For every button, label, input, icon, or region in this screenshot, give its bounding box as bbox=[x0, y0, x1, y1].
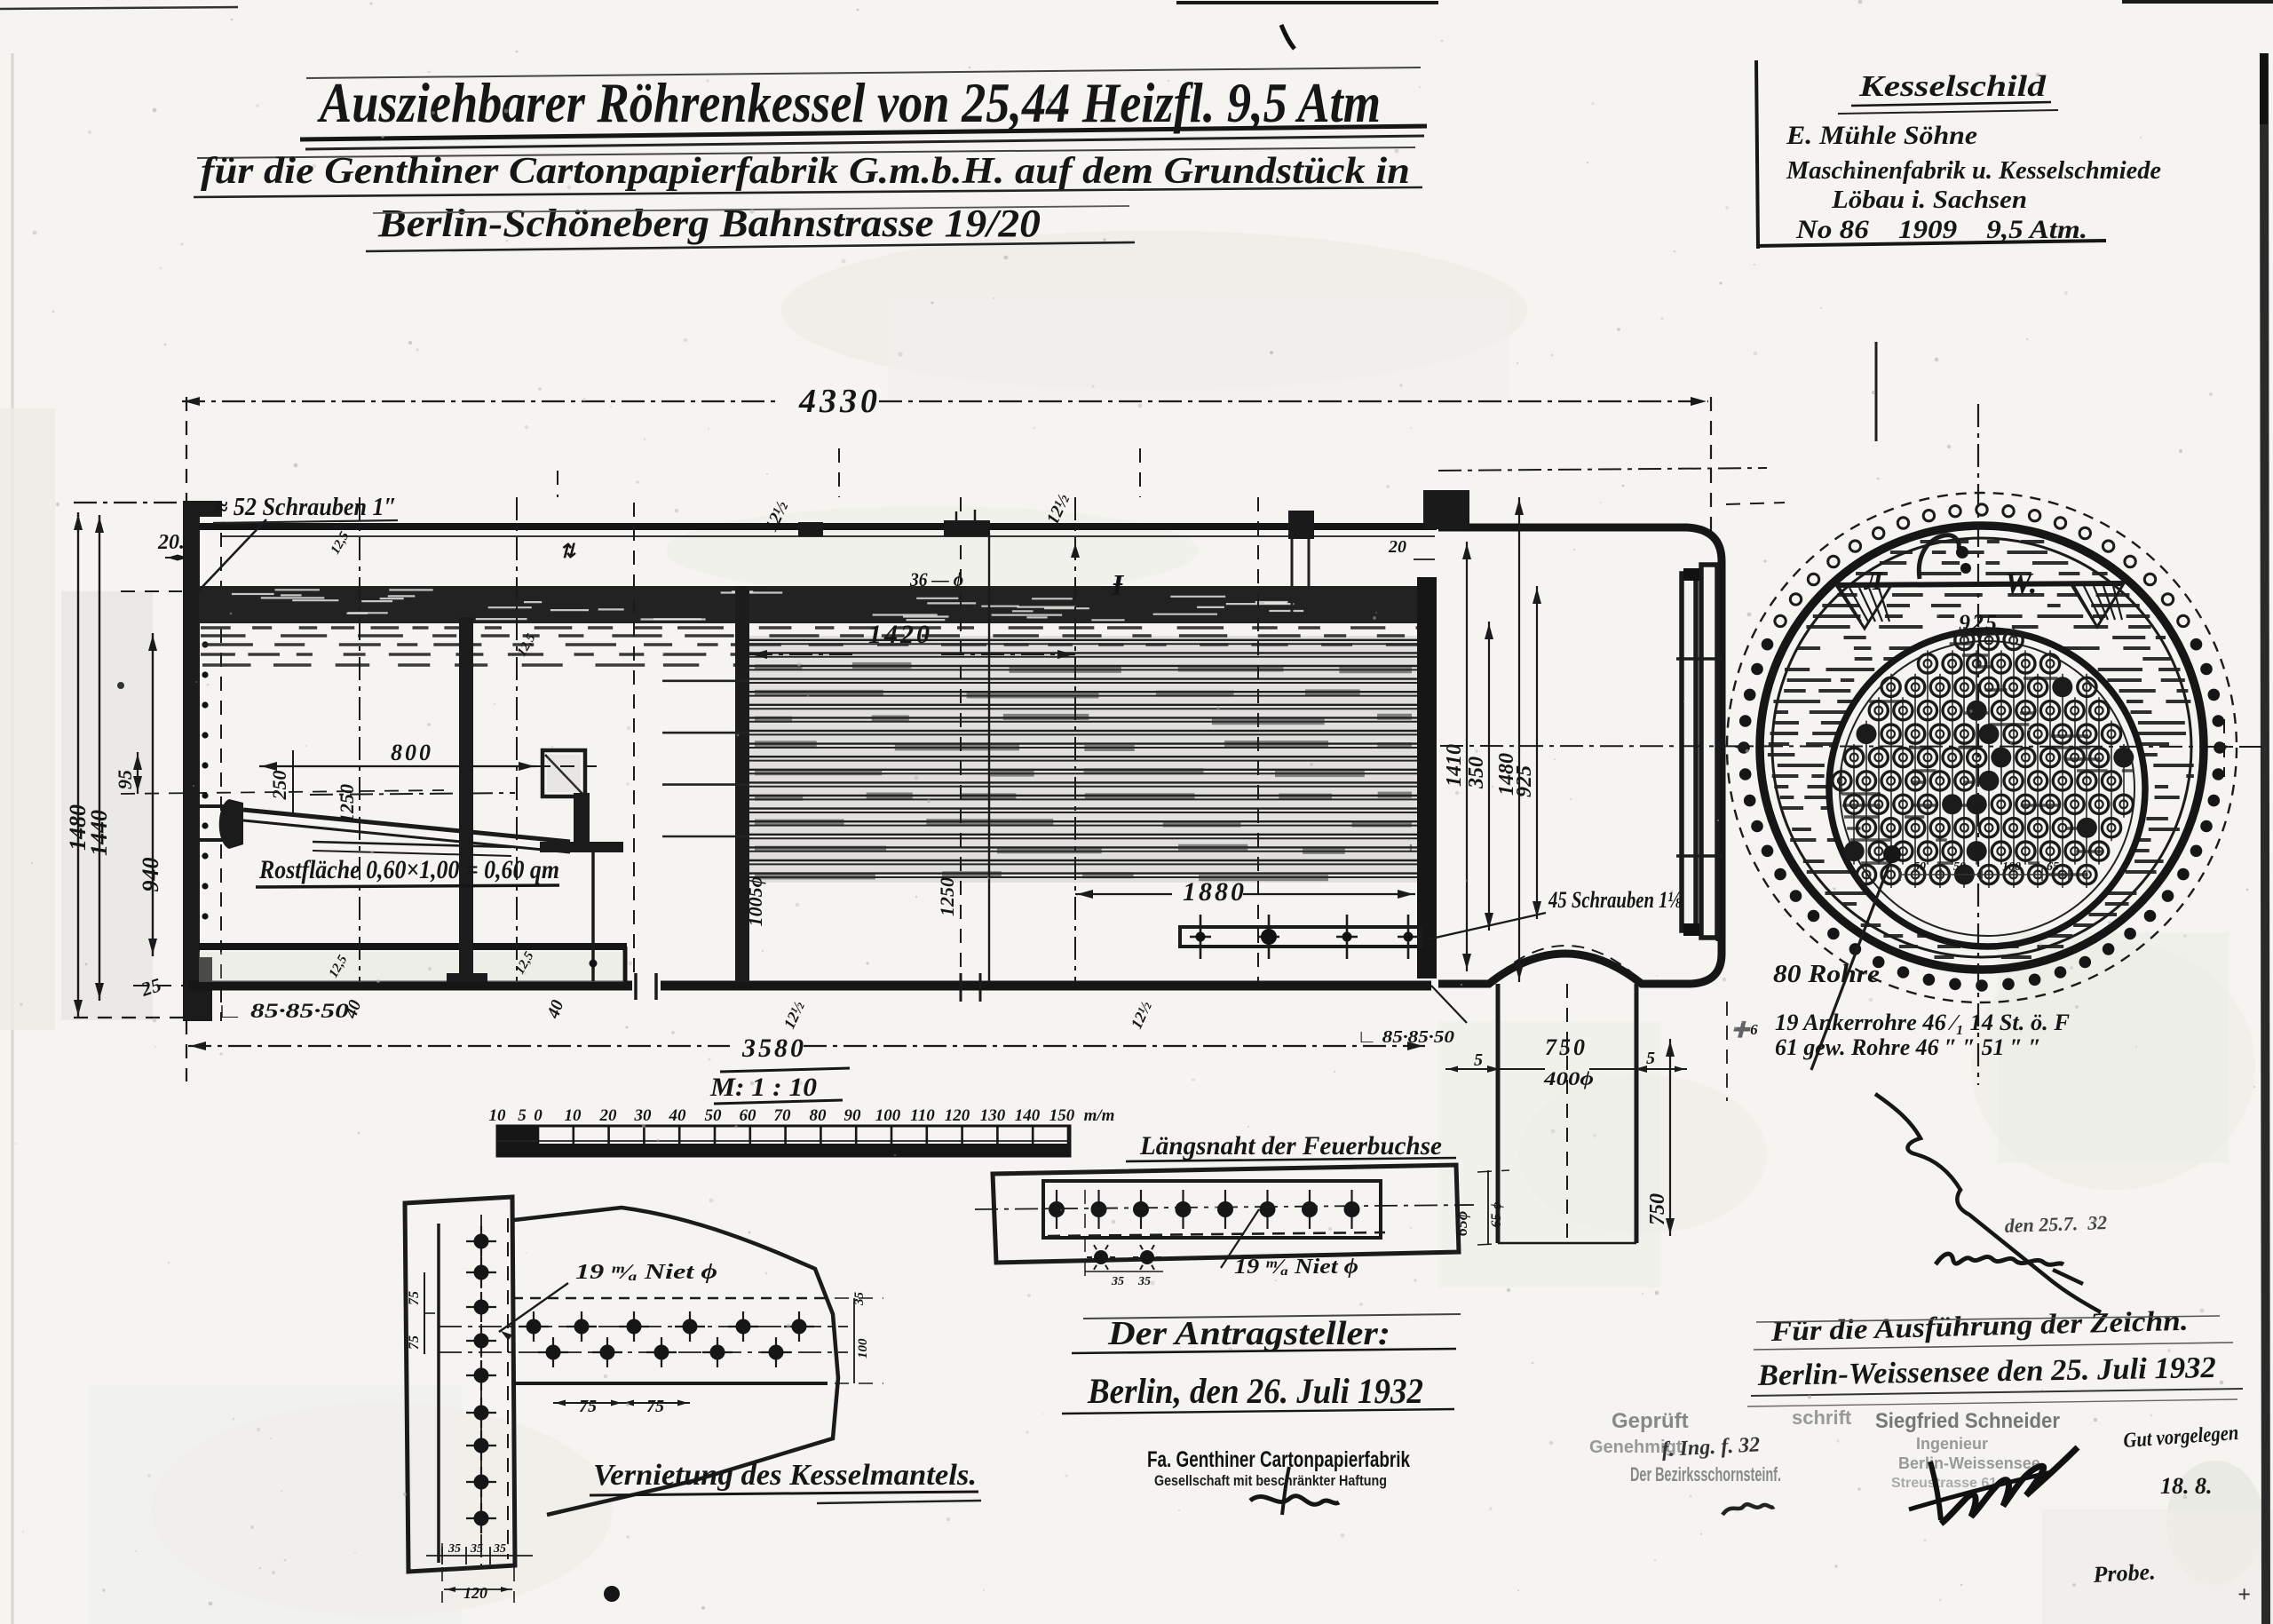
svg-text:65 ϕ: 65 ϕ bbox=[1489, 1201, 1504, 1227]
svg-text:Berlin, den 26. Juli 1932: Berlin, den 26. Juli 1932 bbox=[1087, 1371, 1423, 1411]
svg-text:35: 35 bbox=[1111, 1275, 1124, 1288]
svg-text:1005ϕ: 1005ϕ bbox=[744, 875, 766, 926]
svg-text:50: 50 bbox=[705, 1106, 723, 1125]
svg-text:61 gew. Rohre 46 ″ ″ 51 ″: 61 gew. Rohre 46 ″ ″ 51 ″ ″ bbox=[1775, 1034, 2041, 1060]
svg-text:90: 90 bbox=[844, 1106, 862, 1125]
svg-text:250: 250 bbox=[268, 771, 290, 801]
svg-text:1250: 1250 bbox=[336, 784, 358, 823]
svg-text:1880: 1880 bbox=[1183, 877, 1247, 907]
svg-text:100: 100 bbox=[2002, 860, 2021, 874]
svg-text:4330: 4330 bbox=[798, 383, 881, 420]
svg-text:5: 5 bbox=[1646, 1049, 1655, 1068]
svg-text:50: 50 bbox=[1913, 860, 1926, 874]
svg-text:100: 100 bbox=[856, 1338, 870, 1359]
svg-text:Der Antragsteller:: Der Antragsteller: bbox=[1107, 1315, 1390, 1352]
svg-text:30: 30 bbox=[634, 1106, 653, 1125]
svg-text:den 25.7. 32: den 25.7. 32 bbox=[2004, 1211, 2107, 1237]
svg-text:65: 65 bbox=[2047, 860, 2059, 874]
svg-text:150: 150 bbox=[1049, 1106, 1075, 1125]
svg-text:120: 120 bbox=[945, 1106, 970, 1125]
svg-text:5: 5 bbox=[518, 1106, 527, 1125]
svg-text:Längsnaht der Feuerbuchse: Längsnaht der Feuerbuchse bbox=[1139, 1131, 1442, 1161]
svg-text:Ɨ: Ɨ bbox=[1111, 569, 1125, 602]
svg-text:120: 120 bbox=[463, 1584, 487, 1602]
svg-text:M: 1 : 10: M: 1 : 10 bbox=[709, 1073, 817, 1102]
svg-text:75: 75 bbox=[646, 1397, 664, 1416]
svg-text:Der Bezirksschornsteinf.: Der Bezirksschornsteinf. bbox=[1630, 1463, 1781, 1485]
svg-text:Vernietung des Kesselmantels.: Vernietung des Kesselmantels. bbox=[593, 1459, 977, 1492]
svg-text:3580: 3580 bbox=[741, 1034, 806, 1063]
svg-text:≈ 52 Schrauben 1″: ≈ 52 Schrauben 1″ bbox=[215, 494, 397, 521]
svg-text:130: 130 bbox=[980, 1106, 1006, 1125]
svg-text:schrift: schrift bbox=[1792, 1406, 1852, 1429]
svg-text:für die Genthiner Cartonpapier: für die Genthiner Cartonpapierfabrik G.m… bbox=[201, 151, 1410, 192]
svg-text:35: 35 bbox=[493, 1542, 506, 1556]
svg-text:750: 750 bbox=[1545, 1034, 1588, 1060]
svg-text:Maschinenfabrik u. Kesselschmi: Maschinenfabrik u. Kesselschmiede bbox=[1786, 157, 2161, 185]
svg-text:35: 35 bbox=[470, 1542, 483, 1556]
svg-text:95: 95 bbox=[114, 770, 136, 789]
svg-text:Fa. Genthiner Cartonpapierfabr: Fa. Genthiner Cartonpapierfabrik bbox=[1147, 1447, 1410, 1472]
svg-text:1250: 1250 bbox=[936, 877, 958, 916]
svg-text:110: 110 bbox=[910, 1106, 935, 1125]
svg-text:18. 8.: 18. 8. bbox=[2160, 1473, 2213, 1499]
svg-text:No 86 1909 9,5 Atm.: No 86 1909 9,5 Atm. bbox=[1795, 215, 2087, 244]
svg-text:100: 100 bbox=[875, 1106, 901, 1125]
svg-text:⇅: ⇅ bbox=[559, 540, 576, 562]
svg-text:45 Schrauben 1⅛: 45 Schrauben 1⅛ bbox=[1548, 887, 1682, 913]
svg-text:20.: 20. bbox=[157, 531, 185, 554]
svg-text:1440: 1440 bbox=[86, 810, 112, 856]
svg-text:50: 50 bbox=[1953, 860, 1966, 874]
svg-text:10: 10 bbox=[565, 1106, 582, 1125]
svg-text:Geprüft: Geprüft bbox=[1612, 1409, 1689, 1433]
svg-text:+: + bbox=[2237, 1581, 2251, 1607]
svg-text:5: 5 bbox=[1474, 1050, 1483, 1070]
svg-text:Kesselschild: Kesselschild bbox=[1858, 70, 2047, 103]
svg-text:Probe.: Probe. bbox=[2092, 1558, 2156, 1588]
svg-text:1410: 1410 bbox=[1443, 744, 1466, 787]
svg-text:40: 40 bbox=[669, 1106, 687, 1125]
svg-text:36 — ϕ: 36 — ϕ bbox=[909, 568, 963, 590]
svg-text:➕6: ➕6 bbox=[1731, 1020, 1758, 1038]
svg-text:0: 0 bbox=[534, 1106, 543, 1125]
svg-text:∟ 85·85·50: ∟ 85·85·50 bbox=[216, 1000, 350, 1022]
svg-text:19 Ankerrohre 46 ⁭∕₁ 14 St. ö: 19 Ankerrohre 46 ⁭∕₁ 14 St. ö. F bbox=[1775, 1010, 2070, 1035]
svg-text:m/m: m/m bbox=[1084, 1106, 1115, 1125]
svg-text:925: 925 bbox=[1513, 765, 1536, 797]
svg-text:60: 60 bbox=[740, 1106, 757, 1125]
svg-text:75: 75 bbox=[407, 1291, 422, 1305]
svg-text:140: 140 bbox=[1015, 1106, 1041, 1125]
svg-text:75: 75 bbox=[407, 1335, 422, 1350]
svg-text:75: 75 bbox=[579, 1397, 597, 1416]
svg-text:10: 10 bbox=[489, 1106, 507, 1125]
svg-text:70: 70 bbox=[774, 1106, 792, 1125]
svg-text:940: 940 bbox=[138, 858, 163, 892]
svg-text:80: 80 bbox=[810, 1106, 828, 1125]
svg-text:Rostfläche 0,60×1,00 = 0,60 q: Rostfläche 0,60×1,00 = 0,60 qm bbox=[258, 855, 559, 884]
svg-text:∟ 85·85·50: ∟ 85·85·50 bbox=[1357, 1027, 1454, 1047]
svg-text:350: 350 bbox=[1465, 757, 1488, 789]
svg-text:Siegfried Schneider: Siegfried Schneider bbox=[1875, 1409, 2060, 1433]
svg-text:750: 750 bbox=[1646, 1193, 1669, 1225]
svg-text:Ausziehbarer Röhrenkessel von: Ausziehbarer Röhrenkessel von 25,44 Heiz… bbox=[317, 71, 1381, 134]
svg-text:19 ᵐ∕ₐ Niet ϕ: 19 ᵐ∕ₐ Niet ϕ bbox=[1234, 1256, 1358, 1279]
svg-text:35: 35 bbox=[447, 1542, 461, 1556]
svg-text:E. Mühle Söhne: E. Mühle Söhne bbox=[1786, 121, 1977, 150]
svg-text:Gesellschaft mit beschränkter: Gesellschaft mit beschränkter Haftung bbox=[1154, 1472, 1387, 1489]
svg-text:80 Rohre: 80 Rohre bbox=[1773, 961, 1880, 988]
svg-text:20: 20 bbox=[1388, 537, 1406, 557]
svg-text:Ingenieur: Ingenieur bbox=[1916, 1435, 1988, 1453]
svg-text:Berlin-Weissensee: Berlin-Weissensee bbox=[1898, 1454, 2040, 1472]
svg-text:800: 800 bbox=[391, 740, 433, 765]
svg-text:19 ᵐ∕ₐ Niet ϕ: 19 ᵐ∕ₐ Niet ϕ bbox=[575, 1261, 717, 1284]
svg-text:W.: W. bbox=[2005, 567, 2037, 600]
svg-text:400ϕ: 400ϕ bbox=[1543, 1067, 1595, 1089]
svg-text:35: 35 bbox=[1137, 1275, 1151, 1288]
svg-text:65ϕ: 65ϕ bbox=[1453, 1211, 1470, 1236]
svg-text:1420: 1420 bbox=[868, 620, 932, 649]
svg-text:20: 20 bbox=[599, 1106, 618, 1125]
svg-text:Л: Л bbox=[1863, 566, 1884, 596]
svg-text:Löbau i. Sachsen: Löbau i. Sachsen bbox=[1831, 186, 2027, 214]
